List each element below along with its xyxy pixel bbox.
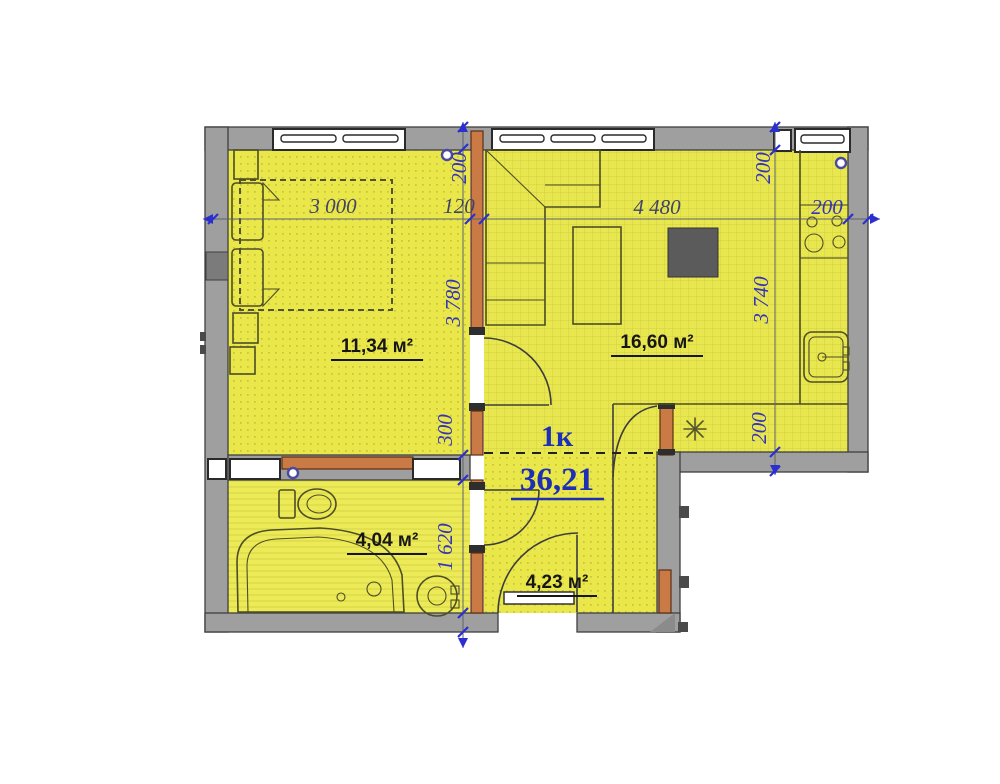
jamb-4	[469, 545, 485, 553]
wall-nub-2	[200, 345, 206, 354]
dim-3780: 3 780	[441, 279, 465, 328]
wall-block-2	[230, 459, 280, 479]
brick-bed-bath	[282, 457, 413, 469]
kitchen-stub	[660, 405, 673, 455]
bedroom-door-gap	[470, 335, 484, 403]
dim-200-top-right: 200	[751, 152, 775, 184]
jamb-1	[469, 327, 485, 335]
wall-nub-5	[678, 622, 688, 632]
wall-pilaster	[206, 252, 228, 280]
vent-bathroom	[288, 468, 298, 478]
dim-1620: 1 620	[433, 523, 457, 571]
jamb-3	[469, 482, 485, 490]
dim-3000: 3 000	[308, 194, 357, 218]
wall-bottom-left	[205, 613, 498, 632]
dim-4480: 4 480	[633, 195, 681, 219]
snowflake-symbol	[684, 418, 706, 440]
partition-top	[471, 131, 483, 335]
window-bedroom	[273, 129, 405, 150]
jamb-2	[469, 403, 485, 411]
bath-door-gap	[470, 490, 484, 545]
wall-nub-3	[679, 506, 689, 518]
brick-hall-right	[659, 570, 671, 613]
floor-plan-svg: 3 000 120 4 480 200 200 3 780 300 1 620 …	[0, 0, 1000, 784]
total-area-label: 36,21	[520, 462, 594, 498]
dim-300: 300	[433, 414, 457, 447]
apartment-type-label: 1к	[541, 420, 574, 453]
window-kitchen	[774, 129, 850, 152]
tv-table	[668, 228, 718, 277]
partition-bottom	[471, 553, 483, 613]
hallway-area-label: 4,23 м²	[526, 572, 589, 593]
dim-200-left: 200	[447, 152, 471, 184]
wall-block-1	[208, 459, 226, 479]
wall-kitchen-bottom	[660, 452, 868, 472]
wall-block-3	[413, 459, 460, 479]
wall-nub-4	[679, 576, 689, 588]
partition-mid	[471, 411, 483, 455]
window-living	[492, 129, 654, 150]
living-area-label: 16,60 м²	[620, 332, 693, 353]
jamb-6	[658, 449, 675, 455]
vent-kitchen	[836, 158, 846, 168]
entrance-door-leaf	[504, 592, 574, 604]
dim-200-bottom-right: 200	[747, 412, 771, 444]
floor-plan-page: 3 000 120 4 480 200 200 3 780 300 1 620 …	[0, 0, 1000, 784]
wall-right	[848, 127, 868, 472]
bathroom-area-label: 4,04 м²	[356, 530, 419, 551]
dim-120: 120	[443, 194, 475, 218]
bedroom-area-label: 11,34 м²	[341, 336, 413, 357]
dim-200-right-h: 200	[811, 195, 843, 219]
wall-nub-1	[200, 332, 206, 341]
wall-left	[205, 127, 228, 632]
dim-3740: 3 740	[749, 276, 773, 325]
